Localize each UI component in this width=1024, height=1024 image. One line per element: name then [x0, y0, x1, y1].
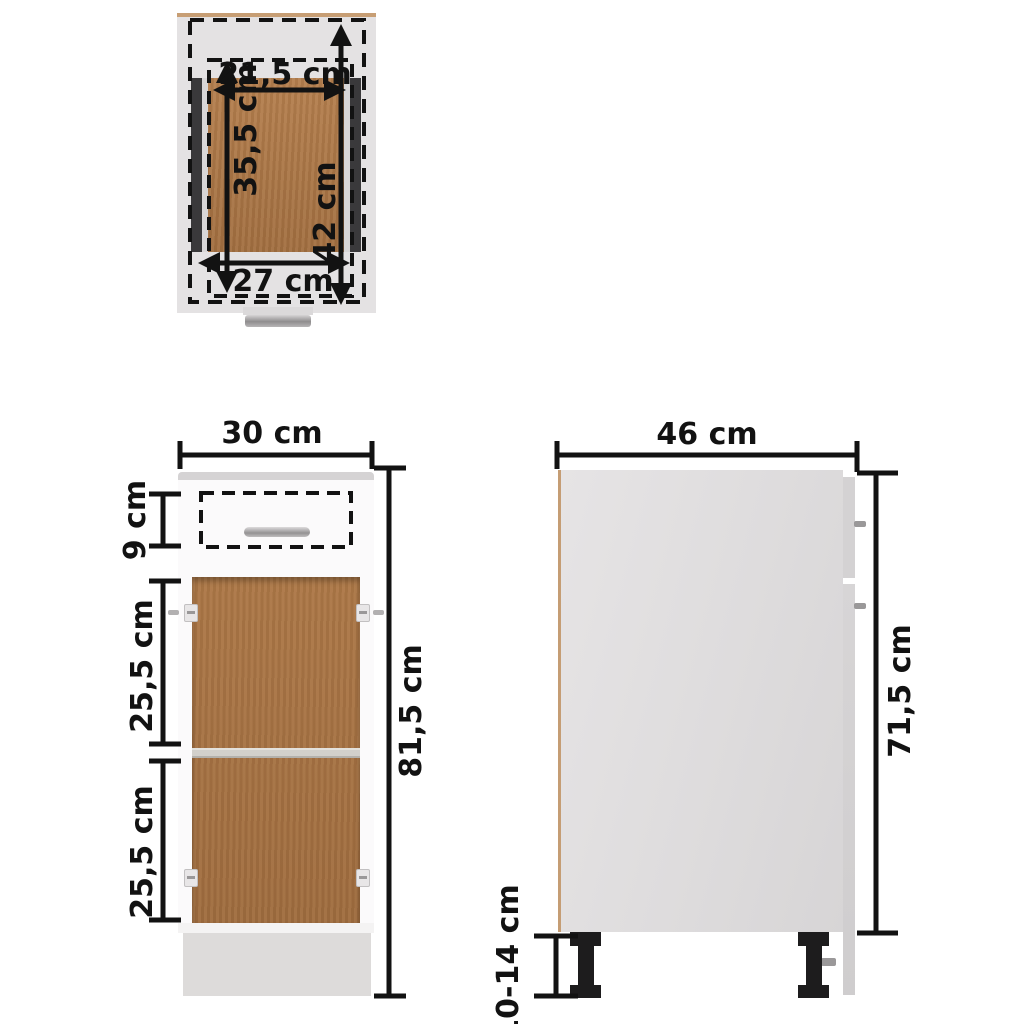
- top-view-back-edge: [177, 13, 376, 17]
- leg-right-flange: [798, 932, 829, 946]
- dim-label-drawer-width: 27 cm: [232, 267, 333, 297]
- leg-left-foot: [570, 985, 601, 998]
- front-view-drawer-handle: [244, 527, 310, 537]
- hinge-upper-left: [184, 604, 198, 622]
- top-view-handle-mount: [243, 307, 313, 315]
- dim-label-inner-depth: 35,5 cm: [232, 63, 262, 197]
- cabinet-dimension-diagram: 21,5 cm 35,5 cm 42 cm 27 cm 30 cm 9 cm 2…: [0, 0, 1024, 1024]
- hinge-pin-right: [373, 610, 384, 615]
- dim-label-rail-depth: 42 cm: [311, 161, 341, 262]
- side-view-drawer-front-edge: [843, 477, 855, 578]
- dim-label-width: 30 cm: [221, 419, 322, 449]
- leg-right-foot: [798, 985, 829, 998]
- hinge-upper-right: [356, 604, 370, 622]
- hinge-lower-left: [184, 869, 198, 887]
- front-view-top-edge: [178, 472, 374, 480]
- hinge-lower-right: [356, 869, 370, 887]
- front-view-bottom-panel: [178, 923, 374, 933]
- dim-label-lower-section: 25,5 cm: [128, 785, 158, 919]
- side-view-door-edge: [843, 584, 855, 995]
- dim-label-body-height: 71,5 cm: [886, 624, 916, 758]
- leg-right-stem: [806, 946, 822, 985]
- side-hinge-pin-upper: [854, 521, 866, 527]
- drawer-rail-right: [350, 78, 361, 252]
- dim-label-depth: 46 cm: [656, 420, 757, 450]
- side-hinge-pin-lower: [854, 603, 866, 609]
- drawer-rail-left: [191, 78, 202, 252]
- front-view-plinth: [183, 933, 371, 996]
- leg-left-stem: [578, 946, 594, 985]
- leg-left-flange: [570, 932, 601, 946]
- dim-label-legs-height: 10-14 cm: [494, 884, 524, 1024]
- hinge-pin-left: [168, 610, 179, 615]
- dim-label-upper-section: 25,5 cm: [128, 599, 158, 733]
- front-view-shelf: [192, 748, 360, 758]
- side-view-panel: [558, 470, 843, 932]
- leg-adjuster-screw: [821, 958, 836, 966]
- side-view-back-edge: [558, 470, 561, 932]
- top-view-drawer-handle: [245, 315, 311, 327]
- dim-label-total-height: 81,5 cm: [397, 644, 427, 778]
- dim-label-drawer-height: 9 cm: [121, 480, 151, 560]
